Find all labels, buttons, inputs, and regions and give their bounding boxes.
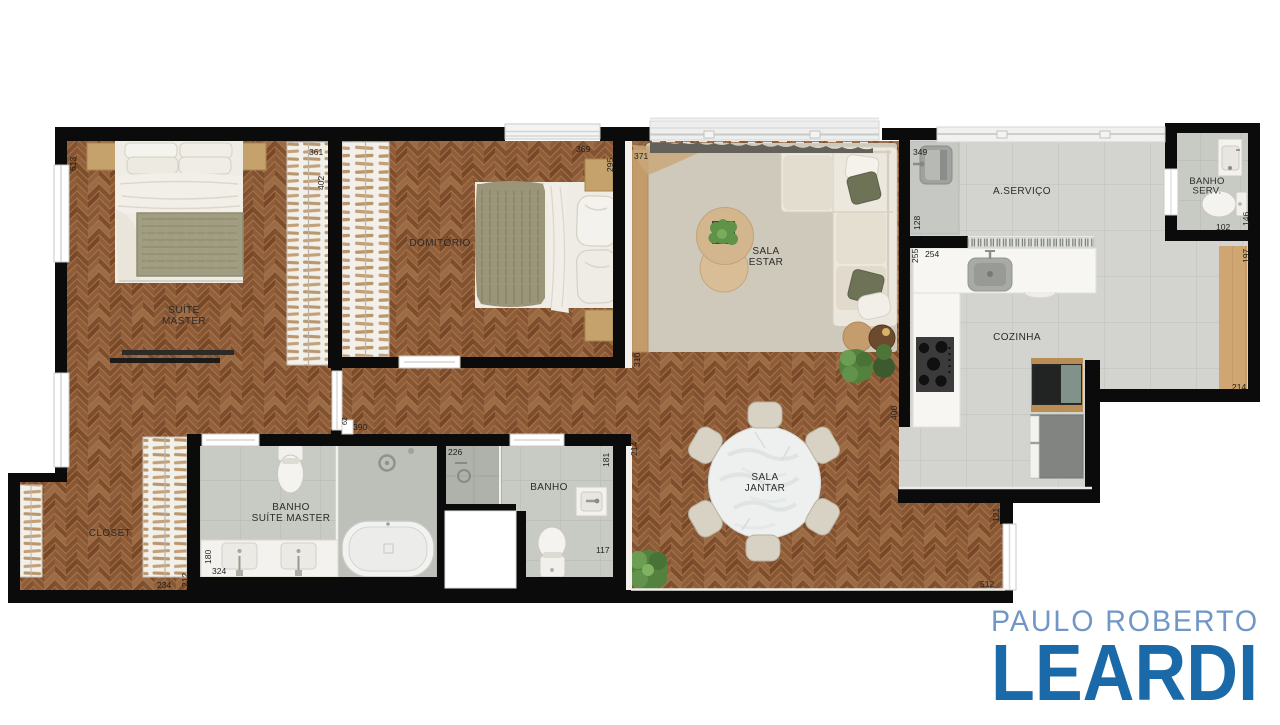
- svg-text:371: 371: [634, 151, 648, 161]
- svg-text:310: 310: [632, 353, 642, 367]
- svg-text:DOMITÓRIO: DOMITÓRIO: [409, 236, 470, 249]
- svg-text:197: 197: [1241, 249, 1251, 263]
- svg-text:324: 324: [212, 566, 226, 576]
- svg-text:SUÍTE: SUÍTE: [168, 303, 199, 316]
- svg-text:369: 369: [576, 144, 590, 154]
- svg-text:349: 349: [913, 147, 927, 157]
- svg-text:CLOSET: CLOSET: [89, 528, 131, 539]
- svg-text:SALA: SALA: [751, 472, 778, 483]
- svg-text:295: 295: [605, 158, 615, 172]
- svg-text:BANHO: BANHO: [530, 482, 568, 493]
- svg-text:JANTAR: JANTAR: [745, 483, 786, 494]
- svg-text:400: 400: [889, 406, 899, 420]
- svg-text:COZINHA: COZINHA: [993, 332, 1041, 343]
- svg-text:402: 402: [316, 176, 326, 190]
- svg-text:ESTAR: ESTAR: [749, 257, 784, 268]
- svg-text:212: 212: [180, 573, 190, 587]
- svg-text:214: 214: [629, 442, 639, 456]
- svg-text:102: 102: [1216, 222, 1230, 232]
- svg-text:226: 226: [448, 447, 462, 457]
- svg-text:LEARDI: LEARDI: [991, 628, 1258, 717]
- svg-text:A.SERVIÇO: A.SERVIÇO: [993, 186, 1051, 197]
- svg-text:234: 234: [157, 580, 171, 590]
- svg-text:390: 390: [353, 422, 367, 432]
- svg-text:254: 254: [925, 249, 939, 259]
- svg-text:613: 613: [68, 157, 78, 171]
- svg-text:117: 117: [596, 545, 610, 555]
- svg-text:MASTER: MASTER: [162, 316, 206, 327]
- svg-text:SERV.: SERV.: [1193, 186, 1222, 197]
- svg-text:128: 128: [912, 216, 922, 230]
- svg-text:214: 214: [1232, 382, 1246, 392]
- svg-text:512: 512: [980, 579, 994, 589]
- svg-text:361: 361: [309, 147, 323, 157]
- svg-text:255: 255: [910, 249, 920, 263]
- svg-text:62: 62: [342, 417, 349, 425]
- svg-text:SALA: SALA: [752, 246, 779, 257]
- svg-text:181: 181: [601, 453, 611, 467]
- svg-text:146: 146: [1241, 212, 1251, 226]
- svg-text:121: 121: [991, 508, 1001, 522]
- svg-text:180: 180: [203, 550, 213, 564]
- svg-text:BANHO: BANHO: [272, 502, 310, 513]
- svg-text:SUÍTE MASTER: SUÍTE MASTER: [252, 511, 331, 524]
